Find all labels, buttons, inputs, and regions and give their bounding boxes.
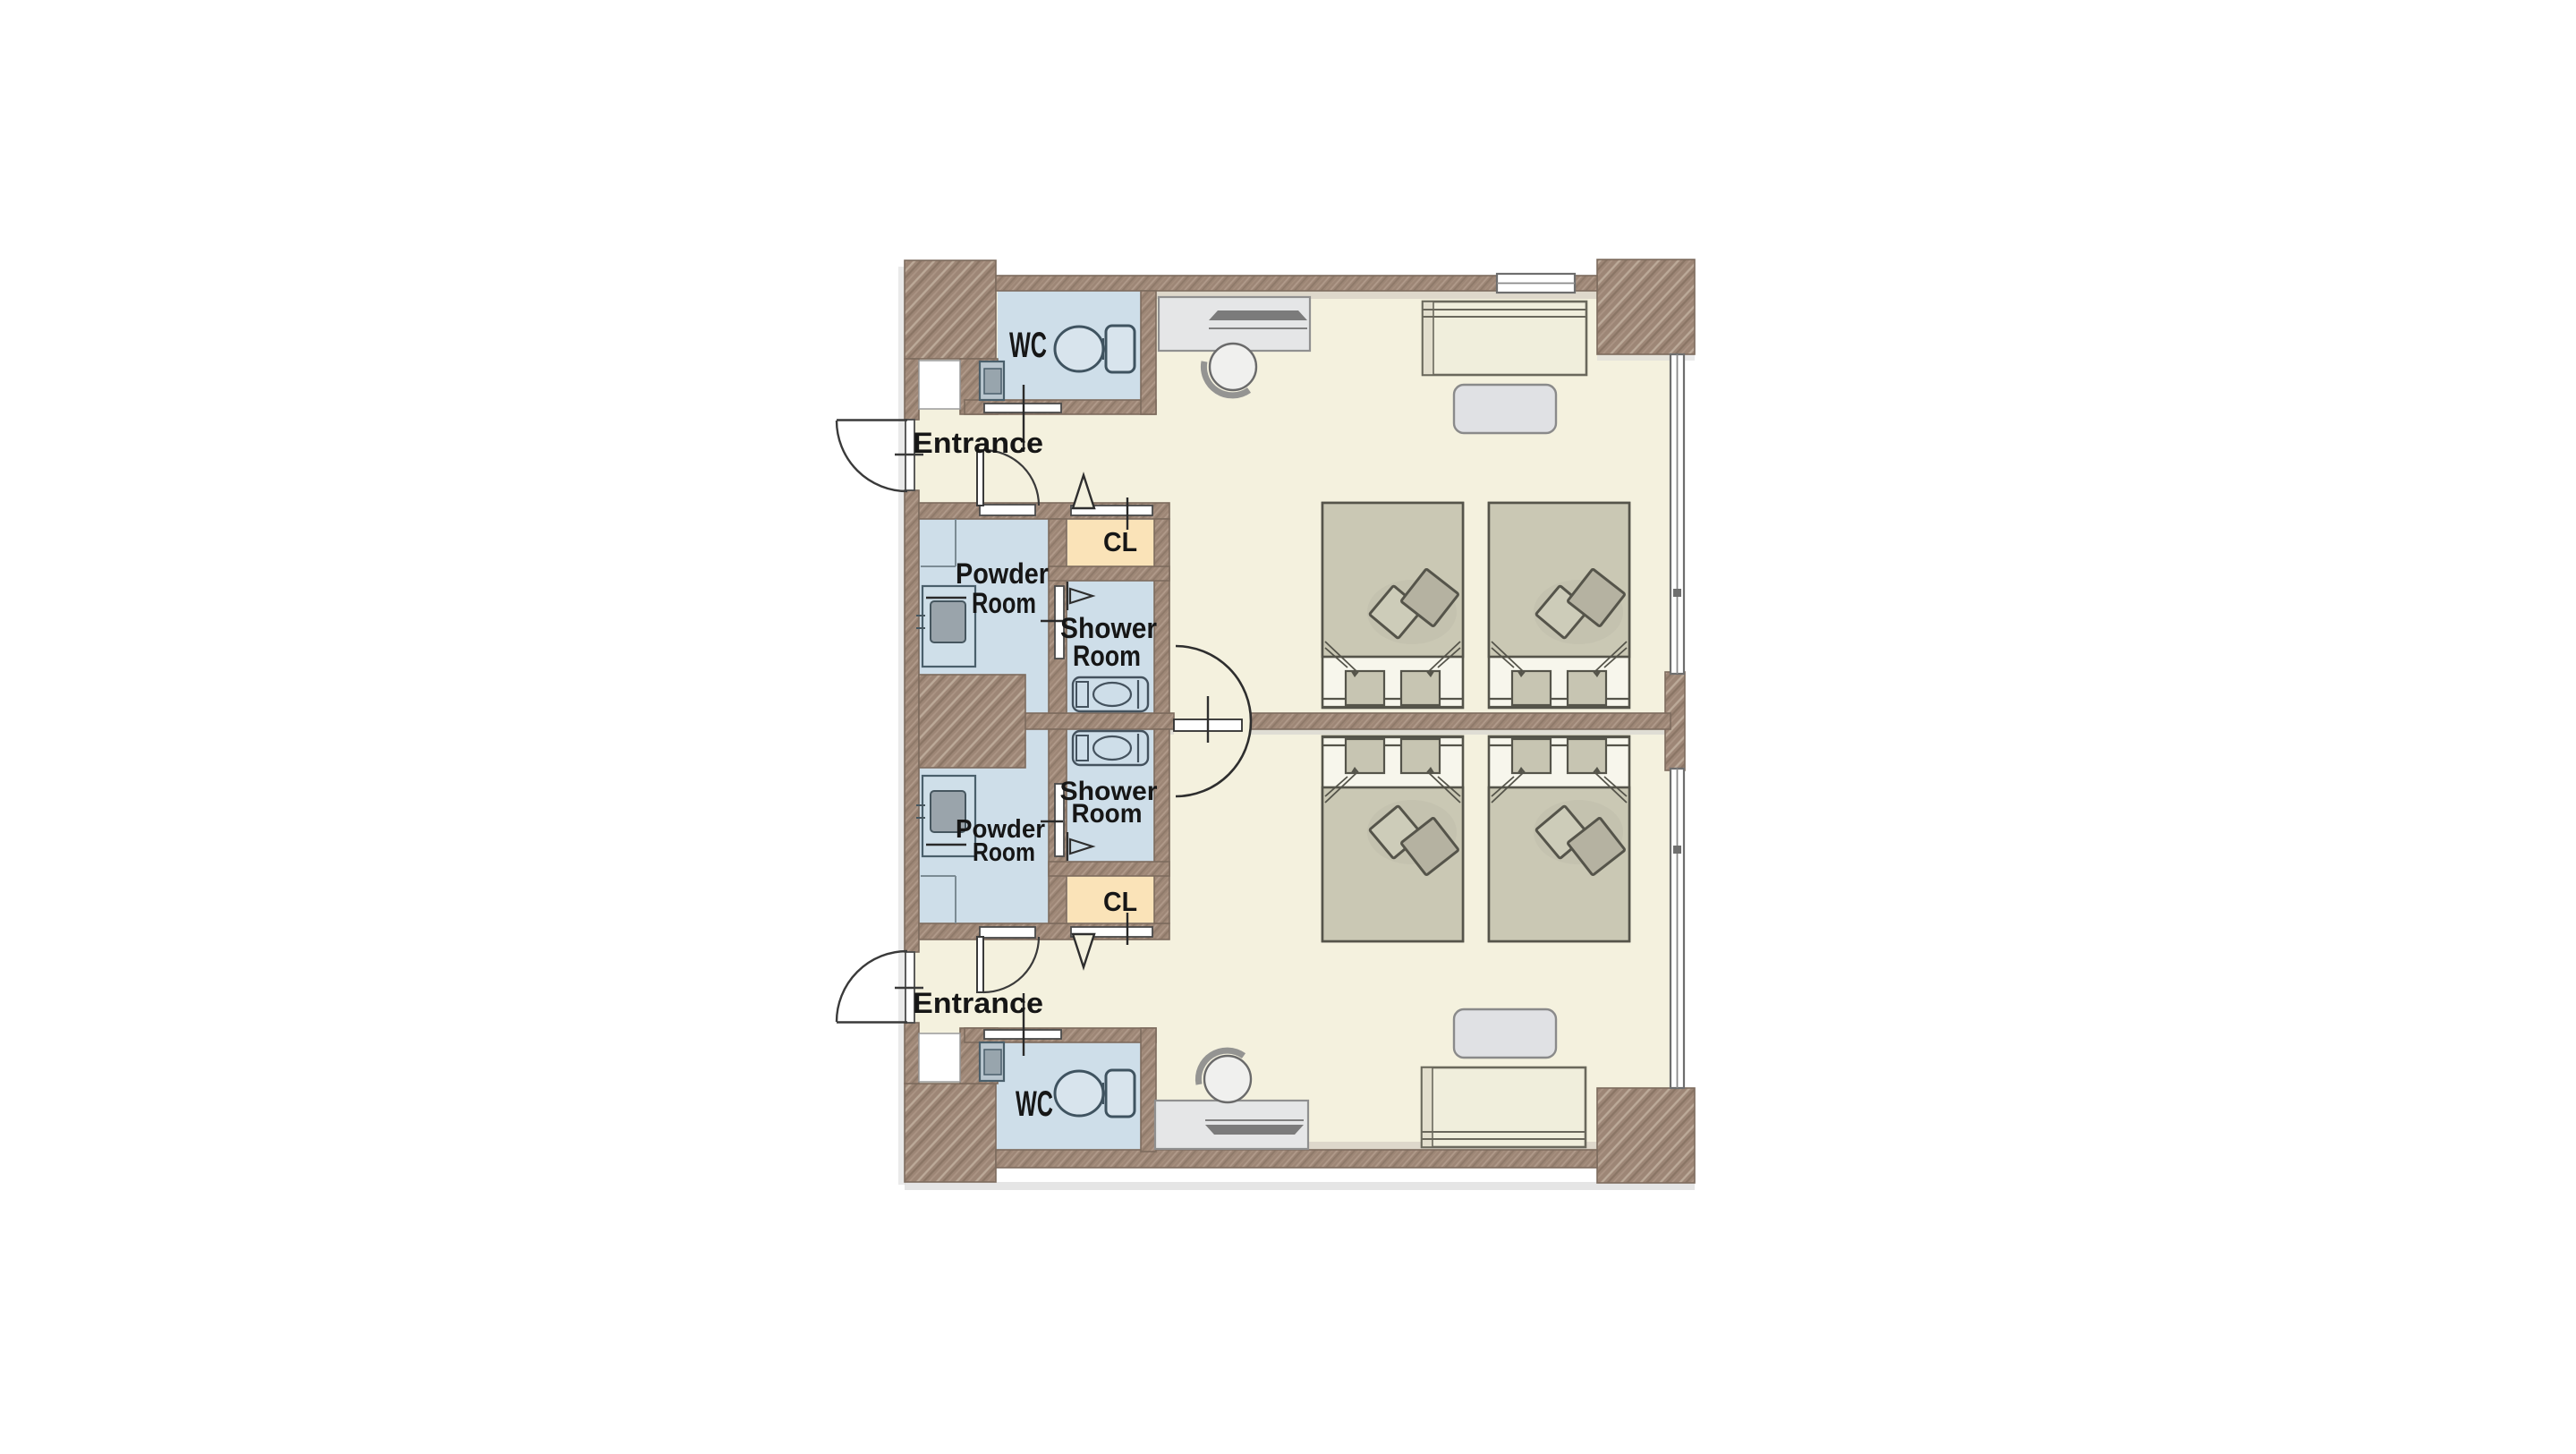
svg-text:WC: WC (1009, 326, 1047, 365)
svg-text:Entrance: Entrance (913, 987, 1043, 1019)
svg-text:Room: Room (1073, 640, 1141, 672)
svg-text:Powder: Powder (956, 557, 1049, 590)
svg-text:Room: Room (973, 838, 1035, 867)
svg-text:Room: Room (972, 587, 1036, 619)
svg-text:CL: CL (1103, 886, 1137, 917)
svg-text:CL: CL (1103, 526, 1137, 557)
svg-text:WC: WC (1016, 1084, 1053, 1124)
svg-text:Entrance: Entrance (913, 427, 1043, 459)
svg-text:Room: Room (1072, 799, 1143, 829)
